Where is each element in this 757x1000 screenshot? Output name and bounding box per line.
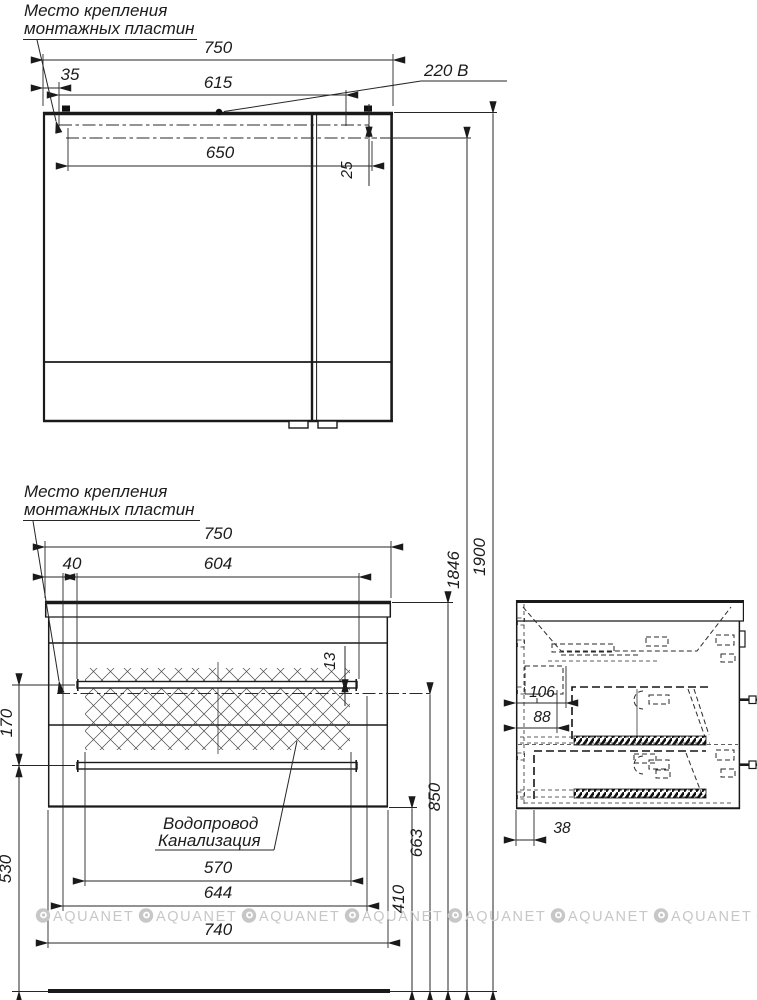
dim-vanity-rail-span-label: 604	[204, 554, 232, 573]
height-dimensions: 410 663 850 1846 1900	[380, 113, 497, 991]
mounting-plate-left-mark	[62, 106, 70, 112]
dim-side-1-label: 106	[529, 684, 555, 701]
watermark-text: AQUANET	[53, 909, 134, 925]
technical-drawing-page: 750 35 615 650 25 220 В Место крепления …	[0, 0, 757, 1000]
dim-vanity-width-label: 750	[204, 524, 233, 543]
dim-rail-gap-label: 170	[0, 708, 16, 737]
dim-rail-floor-label: 530	[0, 854, 15, 883]
mount-label-top-line2: монтажных пластин	[24, 19, 195, 38]
watermark-text: AQUANET	[568, 909, 649, 925]
dim-vanity-plate-offset-label: 40	[63, 554, 82, 573]
dim-rail-drop-label: 13	[322, 652, 339, 670]
power-connection-point	[216, 109, 222, 115]
watermark-text: AQUANET	[156, 909, 237, 925]
side-upper-slide-rail	[574, 736, 706, 745]
vanity-front-view	[45, 601, 433, 807]
mirror-hinge-tab-right	[318, 421, 337, 428]
furniture-installation-drawing: 750 35 615 650 25 220 В Место крепления …	[0, 0, 757, 1000]
floor-line	[12, 991, 497, 992]
dim-side-2-label: 88	[533, 709, 551, 726]
dim-total-height-label: 1900	[470, 538, 489, 576]
dim-rail-height-label: 663	[407, 828, 426, 857]
mounting-plate-callout-vanity: Место крепления монтажных пластин	[23, 482, 200, 681]
water-label-line2: Канализация	[158, 831, 261, 850]
vanity-side-view: 106 88 38	[516, 600, 757, 846]
dim-counter-height-label: 850	[425, 782, 444, 811]
dim-mirror-holes-span-label: 650	[206, 143, 235, 162]
mounting-plate-right-mark	[364, 106, 372, 112]
dim-mirror-outlet-span-label: 615	[204, 73, 233, 92]
dim-plate-span-label: 644	[204, 883, 232, 902]
watermark-text: AQUANET	[259, 909, 340, 925]
watermark-text: AQUANET	[362, 909, 443, 925]
dim-mirror-plate-offset-label: 35	[61, 65, 80, 84]
mounting-rail-upper	[77, 682, 357, 689]
power-label: 220 В	[423, 61, 468, 80]
mount-label-top-line1: Место крепления	[24, 1, 167, 20]
dim-side-3-label: 38	[553, 820, 571, 837]
watermark-text: AQUANET	[671, 909, 752, 925]
dim-mirror-top-drop-label: 25	[339, 161, 356, 180]
plumbing-callout: Водопровод Канализация	[155, 741, 297, 850]
mounting-plate-callout-top: Место крепления монтажных пластин	[23, 1, 197, 121]
dim-mount-height-label: 1846	[444, 551, 463, 589]
mount-label-vanity-line2: монтажных пластин	[24, 500, 195, 519]
mount-label-vanity-line1: Место крепления	[24, 482, 167, 501]
mirror-hinge-tab-left	[289, 421, 308, 428]
side-lower-slide-rail	[574, 789, 706, 798]
side-wall-bracket	[740, 631, 746, 647]
watermark-text: AQUANET	[465, 909, 546, 925]
mounting-zone-crosshatch	[85, 668, 350, 750]
dim-basin-span-label: 570	[204, 858, 233, 877]
mounting-rail-lower	[77, 763, 357, 770]
watermark-row: AQUANET AQUANET AQUANET AQUANET AQUANET …	[36, 908, 757, 925]
side-lower-drawer	[520, 750, 757, 803]
power-callout: 220 В	[224, 61, 507, 112]
dim-mirror-width-label: 750	[204, 38, 233, 57]
